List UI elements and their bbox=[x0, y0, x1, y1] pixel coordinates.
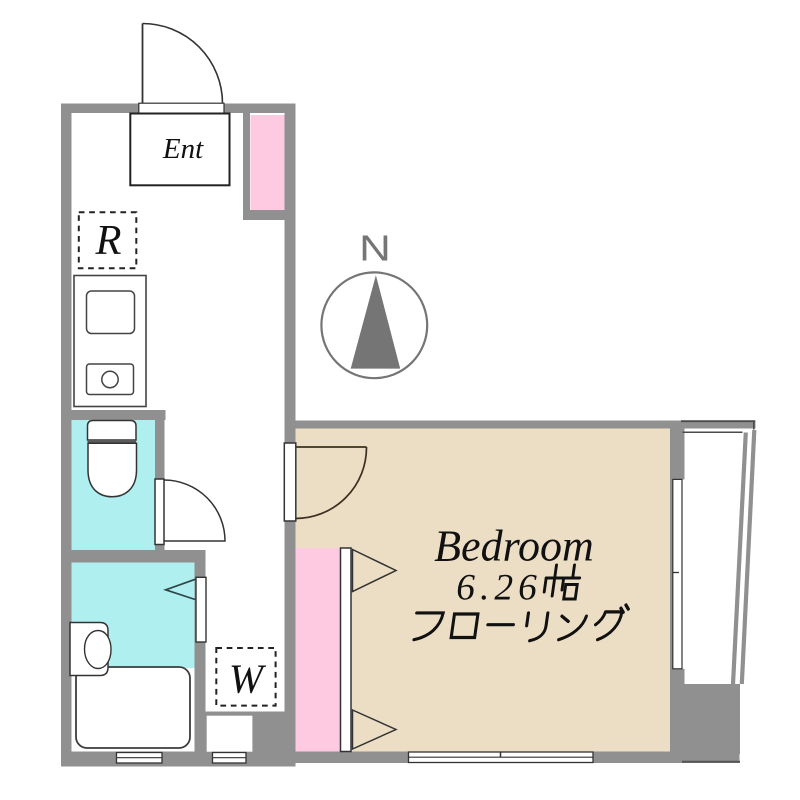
svg-text:Bedroom: Bedroom bbox=[434, 522, 594, 571]
svg-text:Ent: Ent bbox=[162, 133, 204, 165]
svg-text:6.26: 6.26 bbox=[456, 568, 542, 609]
svg-text:R: R bbox=[95, 217, 122, 264]
svg-text:W: W bbox=[229, 656, 267, 702]
svg-text:N: N bbox=[359, 228, 391, 268]
